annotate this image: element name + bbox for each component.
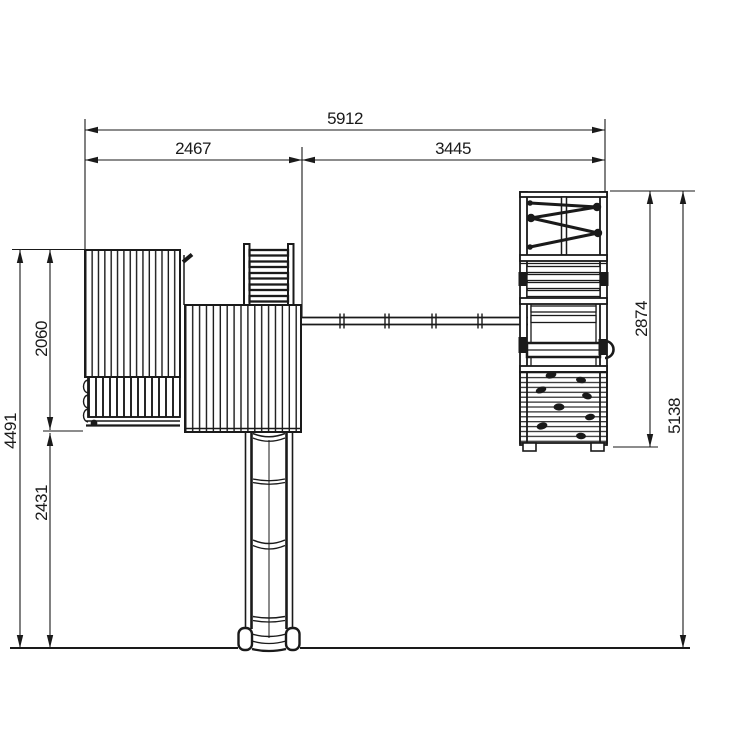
- ladder-rung: [250, 262, 289, 268]
- porch-post: [91, 420, 98, 427]
- ladder-rung: [250, 273, 289, 279]
- playground-technical-drawing: 5912 2467 3445 4491 2060: [0, 0, 750, 750]
- beam-clamp-right: [600, 272, 609, 286]
- slide-foot-left: [239, 628, 253, 650]
- arrow-down-icon: [47, 635, 53, 648]
- arrow-right-icon: [592, 127, 605, 133]
- arrow-right-icon: [289, 157, 302, 163]
- playhouse-top-view: [84, 250, 193, 426]
- playhouse-roof: [85, 250, 180, 377]
- slide-entry-curve: [253, 434, 285, 437]
- bay-plank: [531, 306, 596, 312]
- arrow-down-icon: [680, 635, 686, 648]
- porch-deck: [88, 377, 180, 417]
- rope-anchor: [527, 244, 533, 250]
- swing-frame-top-view: [519, 192, 614, 451]
- rope-anchor: [594, 229, 602, 237]
- arrow-up-icon: [647, 191, 653, 204]
- dim-label-overall-width: 5912: [327, 109, 363, 128]
- dimension-swing-frame-depth: 2874: [632, 191, 653, 447]
- arrow-down-icon: [47, 417, 53, 430]
- climbing-hold: [554, 403, 565, 410]
- cross-plank: [520, 255, 607, 261]
- ladder-rung: [250, 296, 289, 302]
- frame-foot-left: [523, 443, 536, 451]
- dim-label-playhouse-depth: 2060: [32, 321, 51, 357]
- arrow-up-icon: [17, 250, 23, 263]
- tower-platform: [185, 305, 301, 432]
- slide-top-view: [239, 432, 300, 651]
- swing-beam: [301, 314, 528, 329]
- tower-top-view: [185, 305, 301, 432]
- dimension-swing-width: 3445: [302, 139, 605, 163]
- arrow-left-icon: [85, 127, 98, 133]
- bay-plank: [531, 316, 596, 323]
- swing-hangers: [340, 314, 482, 329]
- dimension-slide-extension: 2431: [32, 433, 53, 648]
- arrow-down-icon: [647, 434, 653, 447]
- rope-anchor: [527, 214, 535, 222]
- ladder-rung: [250, 250, 289, 256]
- dimension-overall-depth-right: 5138: [665, 191, 686, 648]
- arrow-up-icon: [680, 191, 686, 204]
- cross-plank: [520, 298, 607, 304]
- dimension-playhouse-depth: 2060: [32, 250, 53, 430]
- rope-anchor: [527, 200, 533, 206]
- dim-label-overall-depth-right: 5138: [665, 398, 684, 434]
- arrow-down-icon: [17, 635, 23, 648]
- arrow-up-icon: [47, 250, 53, 263]
- drawing-root: 5912 2467 3445 4491 2060: [1, 109, 695, 651]
- arrow-up-icon: [47, 433, 53, 446]
- dim-label-swing-width: 3445: [435, 139, 471, 158]
- dim-label-playhouse-width: 2467: [175, 139, 211, 158]
- arrow-left-icon: [85, 157, 98, 163]
- frame-foot-right: [591, 443, 604, 451]
- ladder-rung: [250, 285, 289, 291]
- climbing-wall: [520, 370, 607, 443]
- dim-label-slide-extension: 2431: [32, 485, 51, 521]
- rope-anchor: [593, 203, 601, 211]
- dimension-overall-width: 5912: [85, 109, 605, 133]
- dim-label-swing-frame-depth: 2874: [632, 301, 651, 337]
- dimension-playhouse-width: 2467: [85, 139, 302, 163]
- slide-end-edge: [252, 649, 286, 651]
- deck-planks: [527, 267, 600, 297]
- arrow-left-icon: [302, 157, 315, 163]
- bar-clamp-left: [519, 337, 528, 353]
- slide-foot-right: [286, 628, 300, 650]
- dim-label-overall-depth-left: 4491: [1, 413, 20, 449]
- beam-clamp-left: [519, 272, 528, 286]
- arrow-right-icon: [592, 157, 605, 163]
- dimension-overall-depth-left: 4491: [1, 250, 23, 648]
- access-ladder: [244, 244, 294, 305]
- drawing-canvas: 5912 2467 3445 4491 2060: [0, 0, 750, 750]
